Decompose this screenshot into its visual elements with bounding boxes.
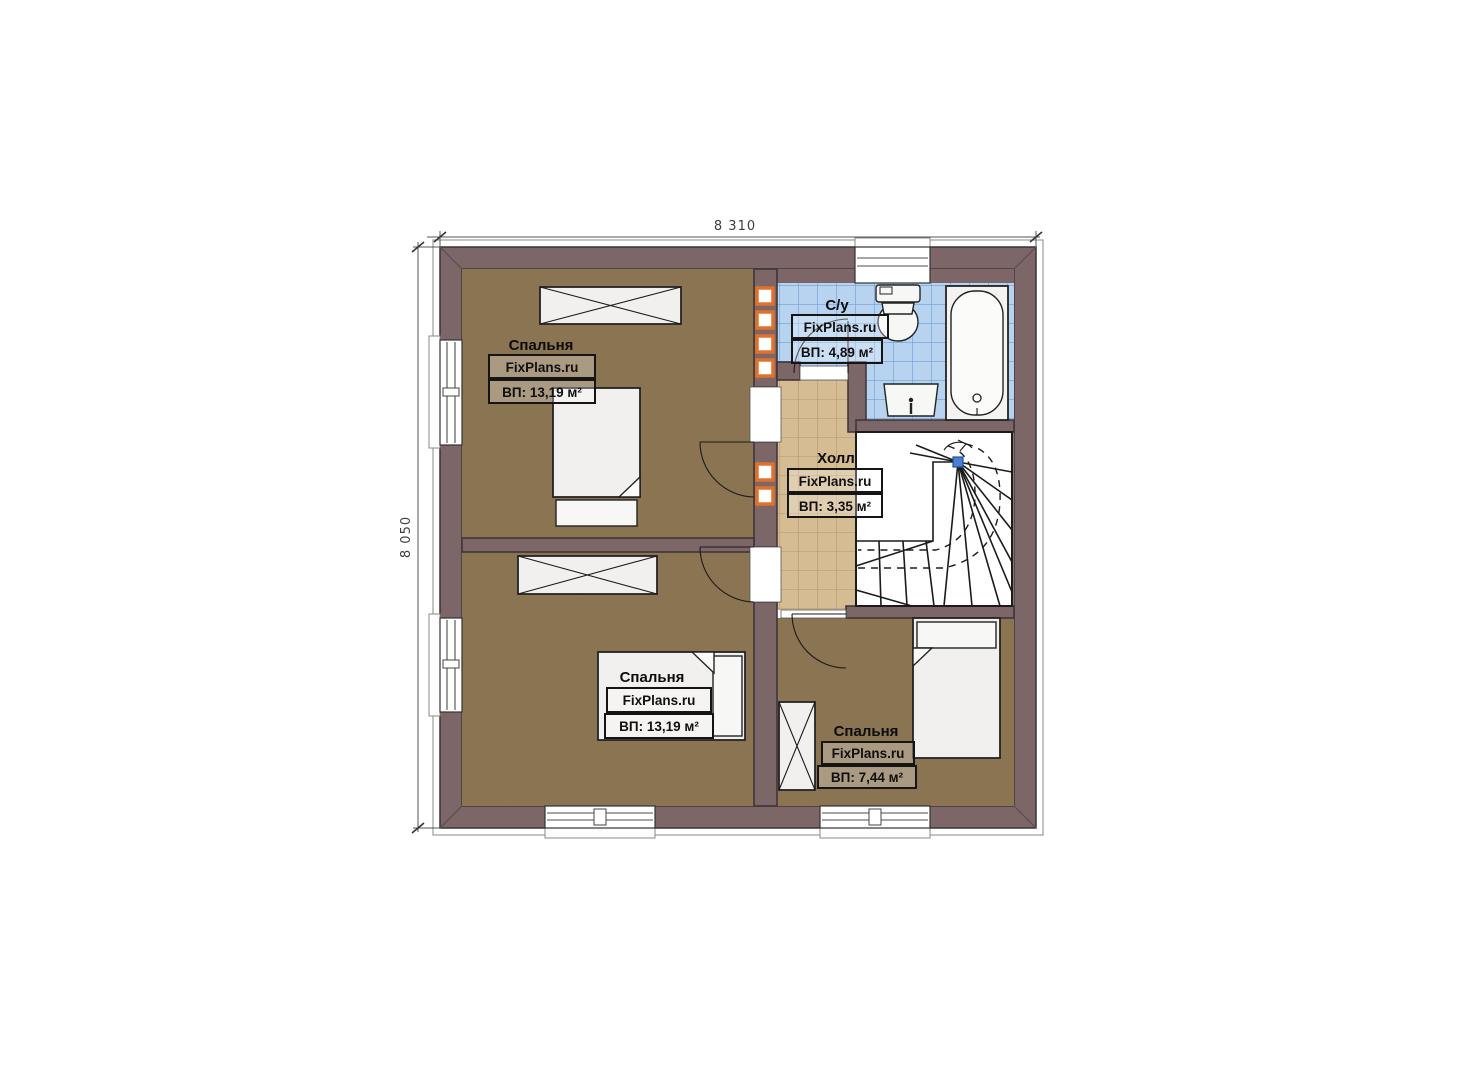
duct-icon: [757, 312, 773, 328]
dimension-width-text: 8 310: [714, 219, 756, 234]
door-threshold-bedroom-2: [750, 547, 781, 602]
floor-plan-drawing: Спальня FixPlans.ru ВП: 13,19 м² С/у Fix…: [0, 0, 1473, 1080]
bed-icon: [913, 618, 1000, 758]
duct-icon: [757, 488, 773, 504]
dimension-left: 8 050: [399, 242, 440, 833]
window-bottom-1: [545, 806, 655, 838]
wardrobe-icon: [540, 287, 681, 324]
brand-text: FixPlans.ru: [506, 360, 579, 375]
brand-text: FixPlans.ru: [832, 746, 905, 761]
room-title: С/у: [825, 297, 849, 314]
door-threshold-bathroom: [800, 366, 848, 380]
bedroom-divider-wall: [462, 538, 754, 552]
area-text: ВП: 13,19 м²: [502, 385, 582, 400]
area-text: ВП: 3,35 м²: [799, 499, 872, 514]
dimension-top: 8 310: [427, 219, 1042, 247]
window-left-2: [429, 614, 462, 716]
duct-icon: [757, 464, 773, 480]
stair-pole-marker: [953, 457, 963, 467]
brand-text: FixPlans.ru: [623, 693, 696, 708]
dimension-height-text: 8 050: [399, 516, 414, 558]
duct-icon: [757, 336, 773, 352]
room-title: Спальня: [834, 723, 899, 740]
area-text: ВП: 4,89 м²: [801, 345, 874, 360]
window-bottom-2: [820, 806, 930, 838]
wardrobe-icon: [518, 556, 657, 594]
room-title: Спальня: [620, 669, 685, 686]
door-threshold-bedroom-1: [750, 387, 781, 442]
duct-icon: [757, 288, 773, 304]
area-text: ВП: 7,44 м²: [831, 770, 904, 785]
area-text: ВП: 13,19 м²: [619, 719, 699, 734]
staircase: [856, 432, 1012, 606]
duct-icon: [757, 360, 773, 376]
bathroom-bottom-wall: [856, 420, 1014, 432]
floor-plan-page: Спальня FixPlans.ru ВП: 13,19 м² С/у Fix…: [0, 0, 1473, 1080]
wardrobe-icon: [779, 702, 815, 790]
stair-bottom-wall: [846, 606, 1014, 618]
window-top: [855, 238, 930, 283]
bathtub-icon: [946, 286, 1008, 420]
room-title: Спальня: [509, 337, 574, 354]
brand-text: FixPlans.ru: [804, 320, 877, 335]
sink-icon: [884, 384, 938, 416]
window-left-1: [429, 336, 462, 448]
room-title: Холл: [817, 450, 855, 467]
bed-icon: [553, 388, 640, 526]
brand-text: FixPlans.ru: [799, 474, 872, 489]
